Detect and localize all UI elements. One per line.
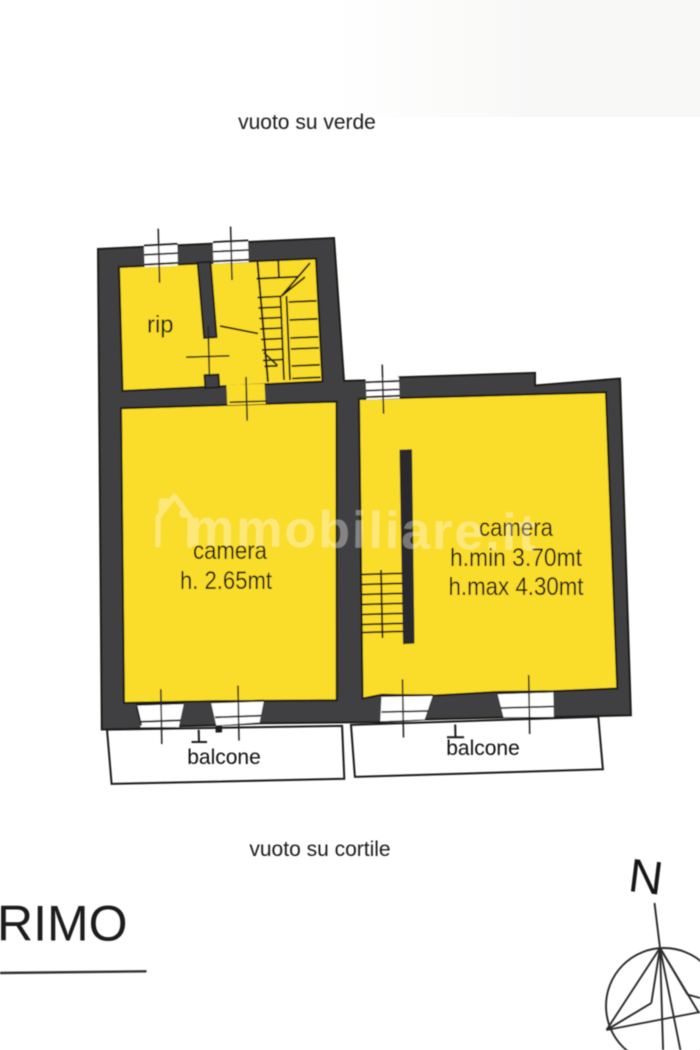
svg-text:vuoto su verde: vuoto su verde: [238, 111, 376, 134]
svg-text:vuoto su cortile: vuoto su cortile: [249, 838, 390, 861]
svg-text:balcone: balcone: [446, 737, 520, 760]
svg-text:h.max 4.30mt: h.max 4.30mt: [449, 573, 584, 601]
svg-text:h. 2.65mt: h. 2.65mt: [180, 567, 272, 595]
svg-text:N: N: [626, 848, 666, 905]
svg-text:rip: rip: [147, 312, 174, 339]
svg-text:RIMO: RIMO: [0, 896, 128, 952]
svg-text:mmobiliare.it: mmobiliare.it: [188, 499, 538, 562]
svg-text:balcone: balcone: [187, 746, 261, 769]
